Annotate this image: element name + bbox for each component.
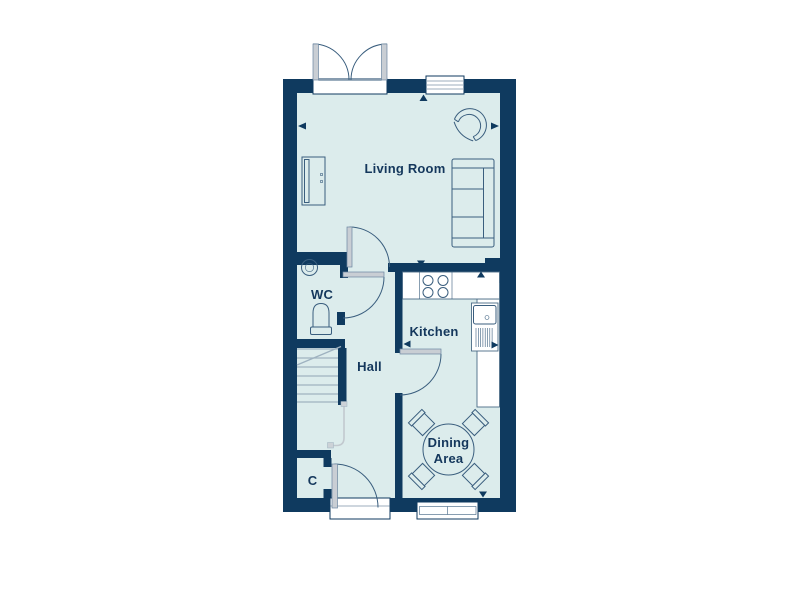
room-label-wc: WC	[311, 287, 333, 302]
rail-post	[328, 443, 334, 449]
worktop-top	[403, 272, 500, 299]
room-label-hall: Hall	[357, 359, 382, 374]
cupboard-top-wall	[297, 450, 331, 458]
hall-dining-wall	[395, 393, 403, 498]
wc-bottom-wall	[297, 339, 345, 348]
rail-post	[341, 402, 347, 407]
stairs-wall	[338, 348, 347, 405]
door-leaf	[382, 44, 388, 80]
room-label-dining-line2: Area	[434, 451, 464, 466]
wc-right-wall-lower	[337, 312, 345, 325]
door-leaf	[343, 272, 384, 277]
door-leaf	[313, 44, 319, 80]
cupboard-stub-lower	[324, 489, 332, 498]
hall-kitchen-wall	[395, 268, 403, 353]
front-door-opening	[330, 498, 390, 519]
room-label-kitchen: Kitchen	[409, 324, 458, 339]
living-kitchen-wall	[388, 263, 500, 272]
window-top	[426, 76, 464, 94]
floor-plan: Living Room WC Hall Kitchen Dining Area …	[0, 0, 800, 600]
door-leaf	[400, 349, 441, 354]
room-label-living-room: Living Room	[365, 161, 446, 176]
door-leaf	[332, 464, 338, 508]
french-door-opening	[313, 79, 387, 94]
door-leaf	[347, 227, 352, 267]
wc-top-wall	[297, 252, 348, 265]
room-label-dining-line1: Dining	[428, 435, 470, 450]
room-label-cupboard: C	[308, 473, 318, 488]
floorplan-canvas: Living Room WC Hall Kitchen Dining Area …	[0, 0, 800, 600]
cupboard-stub-upper	[324, 458, 332, 467]
window-bottom	[417, 502, 478, 519]
